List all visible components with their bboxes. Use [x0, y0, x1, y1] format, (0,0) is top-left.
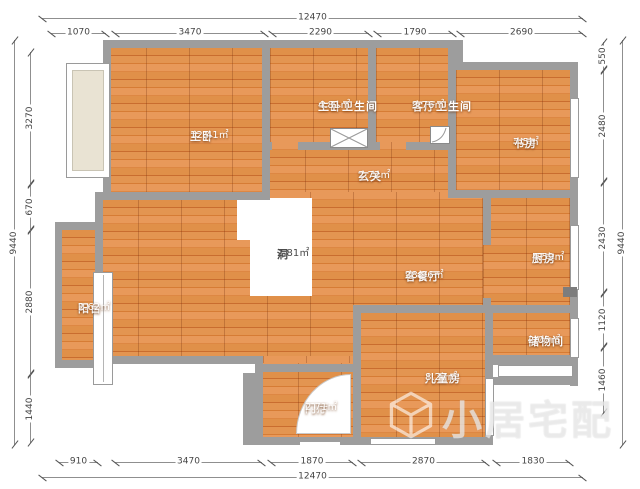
room-area: 2.05㎡	[528, 335, 560, 348]
dim-right-seg-2: 2430	[603, 182, 604, 293]
wall	[376, 142, 380, 150]
wall	[448, 40, 456, 198]
wall	[103, 40, 462, 48]
room-area: 8.27㎡	[425, 372, 457, 385]
dim-bottom-seg-2: 1870	[271, 462, 353, 463]
dim-label: 3470	[175, 457, 202, 467]
dim-label: 9440	[618, 229, 628, 256]
dim-right-seg-4: 1460	[603, 347, 604, 413]
balcony-sliding-door	[93, 272, 113, 385]
dim-top-seg-0: 1070	[51, 33, 106, 34]
dim-bottom-seg-4: 1830	[496, 462, 570, 463]
dim-right-seg-1: 2480	[603, 70, 604, 182]
window-kitchen-right	[570, 225, 579, 290]
wall	[55, 222, 62, 368]
bay-window-inner	[72, 70, 104, 171]
wall	[95, 192, 270, 200]
dim-label: 3470	[177, 28, 204, 38]
dim-left-seg-1: 670	[30, 184, 31, 230]
wall	[493, 355, 578, 365]
room-area: 7.5㎡	[513, 137, 539, 150]
sliding-door-divider	[103, 275, 104, 382]
dim-label: 2480	[599, 113, 609, 140]
sink-vanity-icon	[330, 128, 368, 148]
dim-top-total: 12470	[42, 18, 583, 19]
dim-label: 9440	[10, 229, 20, 256]
dim-left-seg-0: 3270	[30, 52, 31, 184]
dim-label: 1440	[26, 395, 36, 422]
dim-label: 910	[68, 457, 89, 467]
dim-label: 2880	[26, 289, 36, 316]
wall	[448, 190, 578, 198]
wall	[493, 377, 578, 385]
wall	[483, 198, 491, 245]
dim-bottom-seg-1: 3470	[115, 462, 262, 463]
room-area: 2.62㎡	[78, 302, 110, 315]
dim-label: 670	[26, 196, 36, 217]
dim-left-total: 9440	[14, 40, 15, 445]
dim-right-seg-3: 1120	[603, 293, 604, 347]
wall	[455, 62, 578, 70]
floor-study	[456, 62, 570, 198]
room-area: 4.59㎡	[532, 252, 564, 265]
dim-label: 550	[599, 45, 609, 66]
wall	[353, 305, 578, 313]
dim-label: 3270	[26, 105, 36, 132]
dim-right-seg-0: 550	[603, 42, 604, 70]
wall	[263, 364, 361, 372]
dim-top-seg-3: 1790	[377, 33, 453, 34]
dim-top-seg-2: 2290	[272, 33, 369, 34]
dim-label: 2290	[307, 28, 334, 38]
dim-top-seg-1: 3470	[115, 33, 265, 34]
wall	[55, 222, 103, 230]
floorplan: 主卧 12.41㎡ 主卧卫生间 4.81㎡ 客厅卫生间 3.76㎡ 书房 7.5…	[55, 40, 578, 445]
window-storage-bottom	[498, 365, 573, 377]
dim-label: 2430	[599, 224, 609, 251]
room-area: 2.71㎡	[305, 402, 337, 415]
dim-label: 1460	[599, 367, 609, 394]
shower-tray-icon	[430, 126, 450, 144]
dim-label: 12470	[296, 472, 329, 482]
floorplan-canvas: 12470 1070 3470 2290 1790 2690 910 3470 …	[0, 0, 640, 489]
dim-label: 1830	[520, 457, 547, 467]
window-study-right	[570, 98, 579, 178]
dim-left-seg-3: 1440	[30, 374, 31, 443]
room-area: 4.81㎡	[318, 100, 350, 113]
entry-threshold	[300, 442, 340, 446]
dim-top-seg-4: 2690	[460, 33, 583, 34]
dim-bottom-total: 12470	[42, 477, 583, 478]
dim-right-total: 9440	[622, 40, 623, 445]
window-kids-bottom	[370, 438, 436, 445]
dim-bottom-seg-3: 2870	[361, 462, 486, 463]
room-area: 3.76㎡	[412, 100, 444, 113]
wall	[262, 142, 272, 150]
room-area: 12.41㎡	[190, 130, 229, 143]
dim-bottom-seg-0: 910	[59, 462, 98, 463]
dim-label: 12470	[296, 13, 329, 23]
floor-master-bedroom	[103, 40, 270, 200]
window-kids-right	[485, 378, 494, 436]
dim-label: 1120	[599, 307, 609, 334]
dim-left-seg-2: 2880	[30, 230, 31, 374]
dim-label: 1790	[402, 28, 429, 38]
stove-icon	[563, 287, 577, 297]
window-storage-right	[570, 318, 579, 358]
wall	[353, 313, 361, 445]
dim-label: 1070	[65, 28, 92, 38]
wall	[262, 40, 270, 200]
wall	[368, 40, 376, 150]
wall	[243, 373, 263, 445]
floor-kids-room	[353, 305, 493, 445]
room-area: 2.81㎡	[277, 248, 309, 261]
dim-label: 2870	[410, 457, 437, 467]
void-opening	[237, 198, 312, 240]
dim-label: 2690	[508, 28, 535, 38]
dim-label: 1870	[299, 457, 326, 467]
wall	[95, 356, 263, 364]
room-area: 28.96㎡	[405, 270, 444, 283]
room-area: 2.72㎡	[358, 170, 390, 183]
